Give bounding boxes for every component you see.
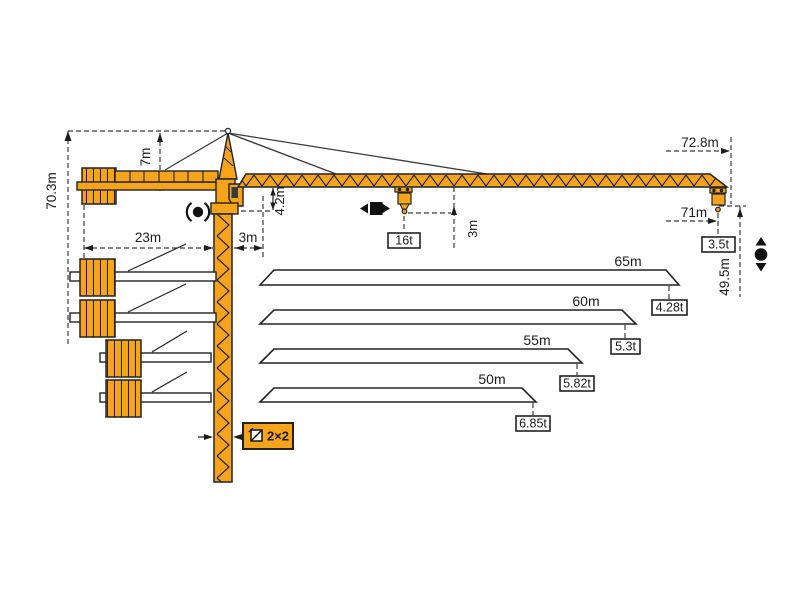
dim-jib-underside: 4.2m (272, 187, 287, 216)
dim-min-trolley: 3m (239, 230, 258, 245)
tip-capacity-box: 3.5t (702, 237, 735, 252)
jib-variant-length: 65m (614, 253, 641, 269)
jib-variant-capacity: 5.82t (563, 377, 591, 391)
dim-tip-hook-radius: 71m (681, 205, 707, 220)
jib-variant-capacity: 4.28t (656, 301, 684, 315)
jib-variant-length: 60m (572, 293, 599, 309)
max-capacity-box: 16t (388, 233, 420, 248)
tower-mast (214, 214, 232, 482)
jib-variant-capacity: 5.3t (615, 340, 636, 354)
dim-hook-drop: 3m (465, 220, 480, 238)
tip-capacity-label: 3.5t (708, 238, 729, 252)
dim-counterjib-radius: 23m (135, 230, 161, 245)
jib-variant-capacity: 6.85t (519, 417, 547, 431)
crane-diagram: 2×2 65m 4.28t 60m 5.3t 55 (0, 0, 800, 600)
crane-diagram-page: 2×2 65m 4.28t 60m 5.3t 55 (0, 0, 800, 600)
apex-pin (225, 128, 230, 133)
jib-variant-length: 50m (478, 371, 505, 387)
jib-variant-length: 55m (523, 332, 550, 348)
slewing-platform (211, 203, 238, 214)
dim-max-radius: 72.8m (681, 135, 719, 150)
hook-icon (402, 209, 407, 214)
mast-section-icon (249, 428, 262, 441)
dim-total-height: 70.3m (44, 172, 59, 210)
main-jib (238, 174, 727, 187)
max-capacity-label: 16t (395, 234, 413, 248)
mast-section-label: 2×2 (267, 429, 289, 444)
dim-hook-height: 49.5m (717, 258, 732, 296)
dim-head-height: 7m (138, 148, 153, 167)
hook-icon (716, 207, 721, 212)
